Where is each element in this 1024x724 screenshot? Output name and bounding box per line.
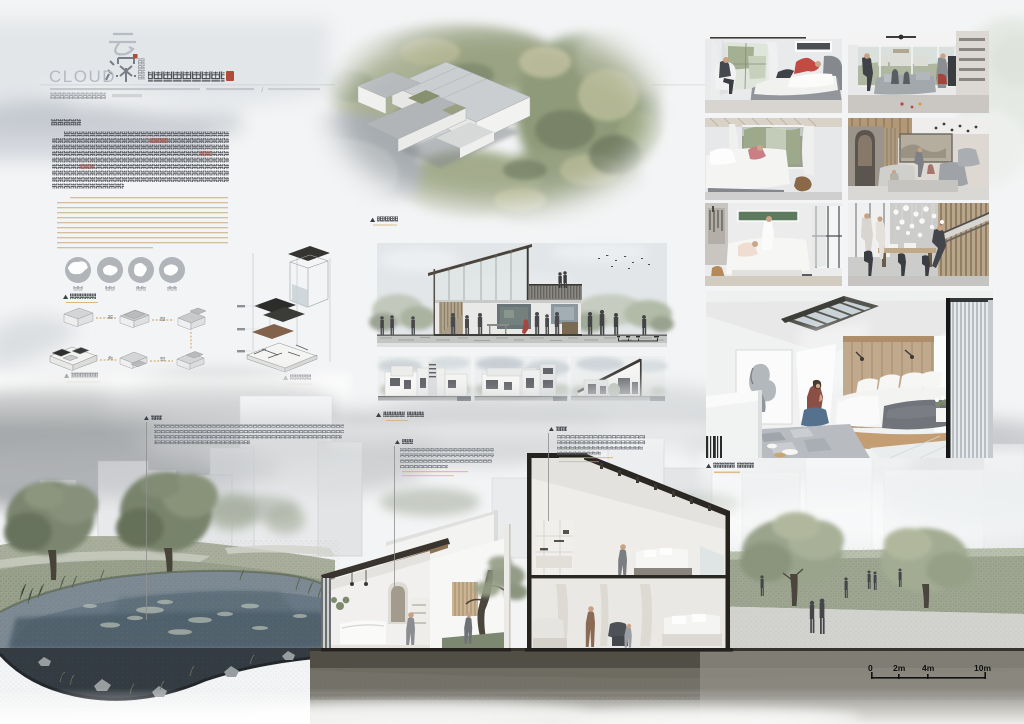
svg-text:10m: 10m: [974, 663, 991, 673]
svg-text:CLOUD: CLOUD: [49, 67, 116, 86]
svg-text:4m: 4m: [922, 663, 935, 673]
svg-text:2m: 2m: [893, 663, 906, 673]
svg-text:0: 0: [868, 663, 873, 673]
